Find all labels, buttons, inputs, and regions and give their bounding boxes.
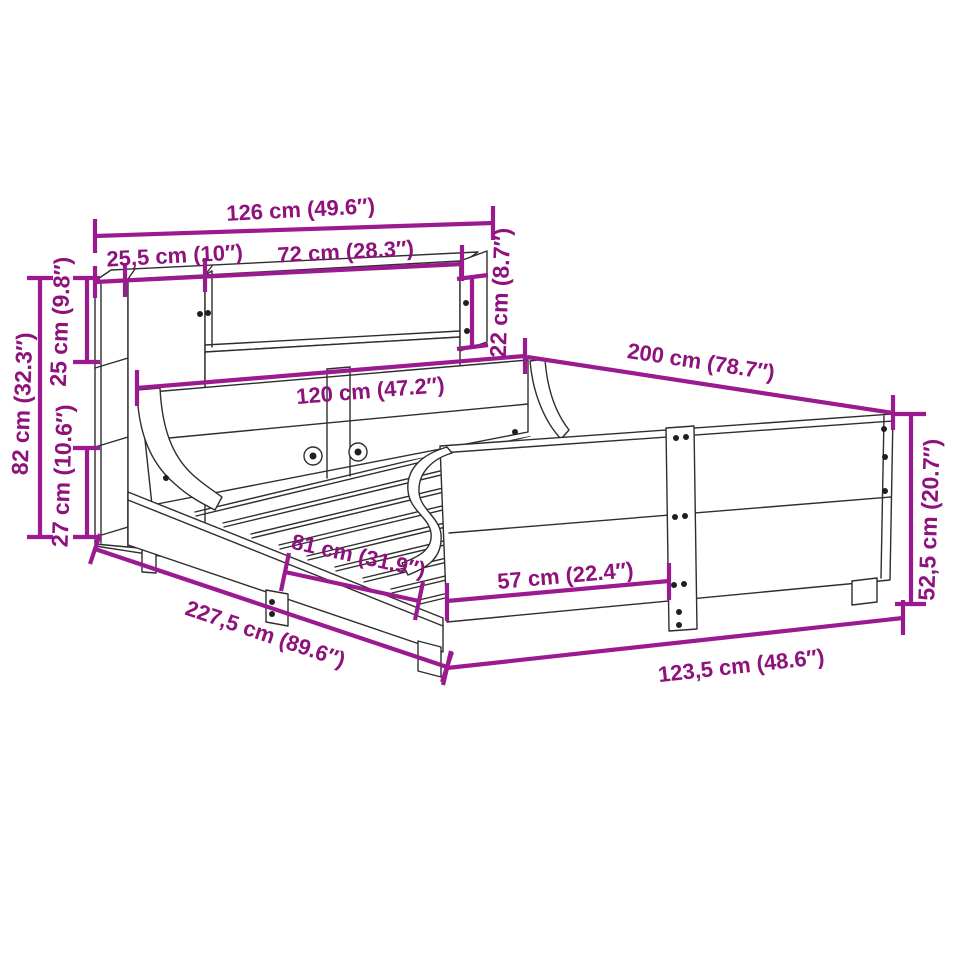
dim-label-upper-shelf-height: 25 cm (9.8″) (45, 256, 76, 387)
dim-label-lower-shelf-height: 27 cm (10.6″) (47, 404, 78, 548)
dim-label-shelf-opening-height: 22 cm (8.7″) (485, 227, 516, 358)
dim-label-front-width: 123,5 cm (48.6″) (657, 644, 826, 687)
headboard-far-wing (530, 359, 569, 439)
footboard-post (666, 426, 697, 631)
dim-label-footboard-height: 52,5 cm (20.7″) (913, 438, 945, 601)
diagram-page: 126 cm (49.6″) 25,5 cm (10″) 72 cm (28.3… (0, 0, 955, 955)
dim-label-overall-top-width: 126 cm (49.6″) (226, 193, 376, 226)
dim-label-bed-length: 200 cm (78.7″) (626, 338, 777, 385)
footboard-right-leg (852, 578, 877, 605)
dim-label-headboard-total-height: 82 cm (32.3″) (7, 332, 38, 476)
bed-dimension-diagram: 126 cm (49.6″) 25,5 cm (10″) 72 cm (28.3… (0, 0, 955, 955)
bookcase-left-side-panel (95, 279, 128, 547)
